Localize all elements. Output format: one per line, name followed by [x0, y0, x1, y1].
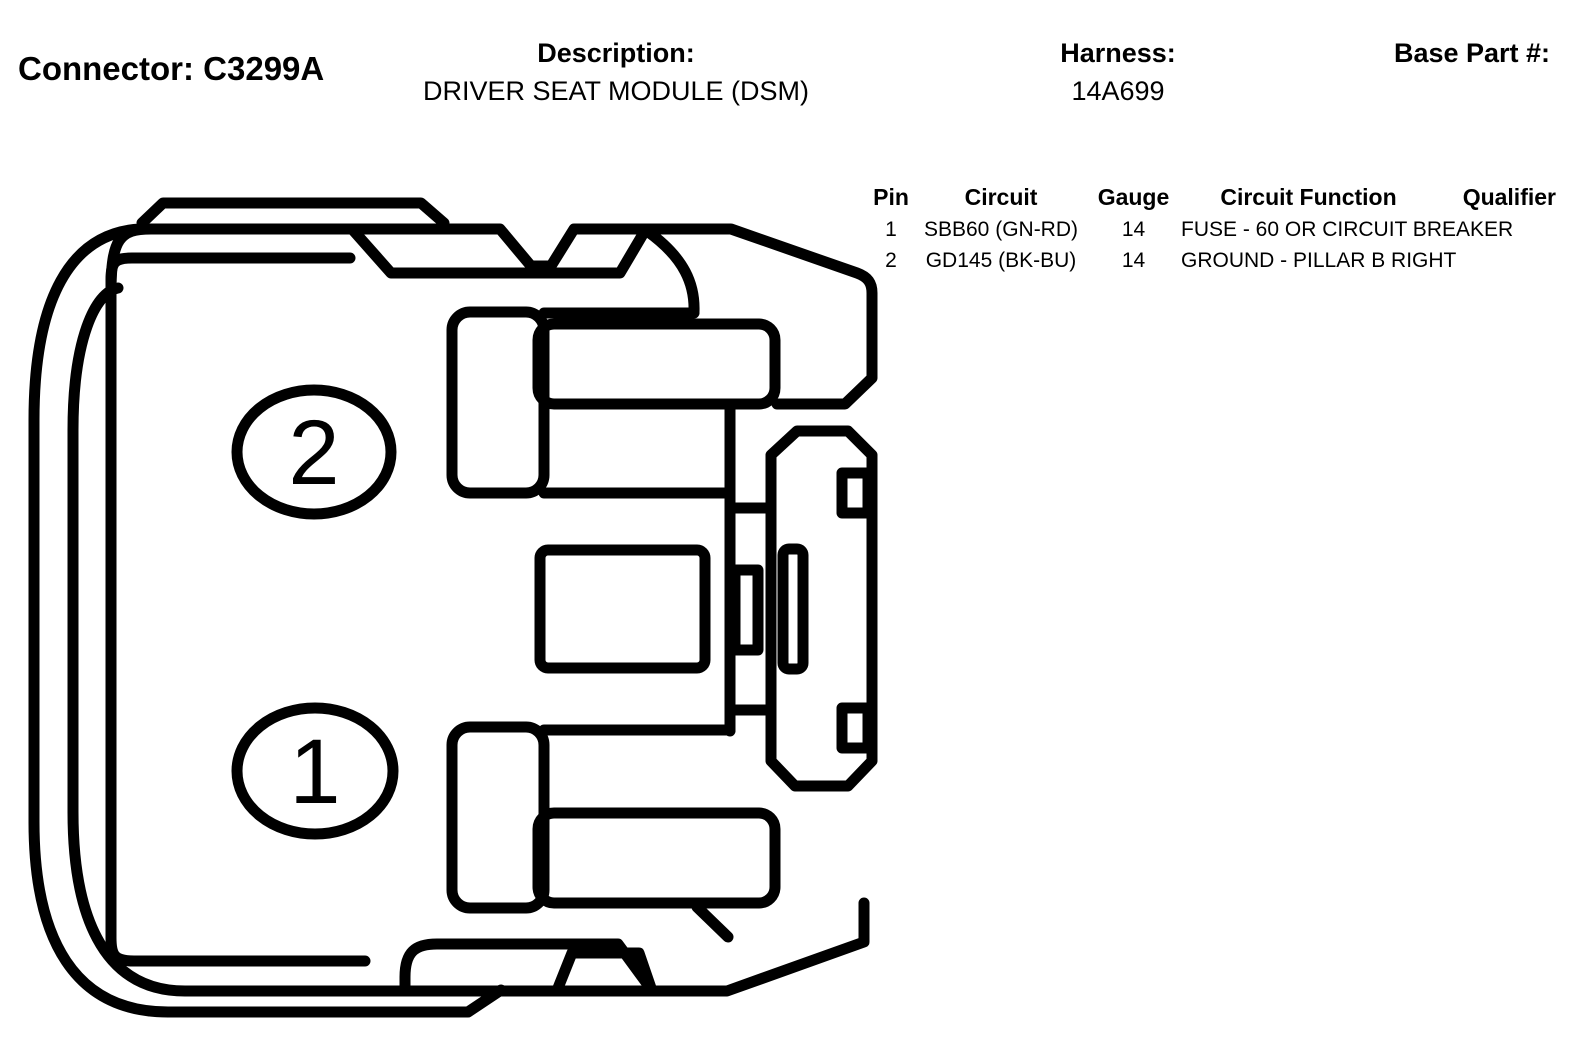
- description-block: Description: DRIVER SEAT MODULE (DSM): [418, 38, 814, 106]
- rear-shell-inner-outline: [73, 288, 864, 991]
- top-rib: [142, 203, 444, 223]
- description-label: Description:: [418, 38, 814, 68]
- row1-circuit-function: FUSE - 60 OR CIRCUIT BREAKER: [1181, 214, 1526, 245]
- col-header-circuit: Circuit: [916, 180, 1086, 214]
- harness-value: 14A699: [1018, 76, 1218, 106]
- row1-circuit: SBB60 (GN-RD): [916, 214, 1086, 245]
- cavity-2-label: 2: [288, 402, 339, 504]
- pin-table: Pin Circuit Gauge Circuit Function Quali…: [866, 180, 1584, 276]
- key-tab: [735, 570, 758, 650]
- row1-gauge: 14: [1086, 214, 1181, 245]
- connector-sheet: 2 1 Connector: C3299A Description: DRIVE…: [0, 0, 1584, 1040]
- col-header-circuit-function: Circuit Function: [1136, 180, 1481, 214]
- connector-title: Connector: C3299A: [18, 50, 324, 88]
- rear-shell-outer-outline: [34, 229, 501, 1012]
- description-value: DRIVER SEAT MODULE (DSM): [418, 76, 814, 106]
- center-slot: [540, 550, 705, 668]
- row2-qualifier: [1526, 245, 1584, 276]
- tower-bottom-right: [538, 813, 775, 903]
- harness-label: Harness:: [1018, 38, 1218, 68]
- connector-drawing: 2 1: [0, 0, 1584, 1040]
- harness-block: Harness: 14A699: [1018, 38, 1218, 106]
- cavity-1-marker: 1: [237, 708, 393, 834]
- row1-qualifier: [1526, 214, 1584, 245]
- cavity-1-label: 1: [289, 721, 340, 823]
- base-part-label: Base Part #:: [1360, 38, 1584, 68]
- tower-top-right: [538, 324, 775, 404]
- tower-bottom-left: [452, 727, 544, 908]
- bottom-hook-edge: [697, 907, 728, 937]
- latch-clip-bottom: [842, 708, 868, 748]
- row2-gauge: 14: [1086, 245, 1181, 276]
- col-header-pin: Pin: [866, 180, 916, 214]
- col-header-qualifier: Qualifier: [1526, 180, 1584, 214]
- top-hook-edge: [647, 231, 694, 312]
- tower-top-left: [452, 312, 544, 493]
- center-keyway: [540, 406, 771, 731]
- latch-assembly: [771, 431, 872, 786]
- row2-pin: 2: [866, 245, 916, 276]
- row2-circuit-function: GROUND - PILLAR B RIGHT: [1181, 245, 1526, 276]
- inner-border-outline: [111, 258, 365, 961]
- base-part-block: Base Part #:: [1360, 38, 1584, 76]
- row2-circuit: GD145 (BK-BU): [916, 245, 1086, 276]
- cavity-2-marker: 2: [237, 390, 391, 514]
- latch-clip-top: [842, 473, 868, 513]
- latch-bar: [783, 549, 803, 669]
- row1-pin: 1: [866, 214, 916, 245]
